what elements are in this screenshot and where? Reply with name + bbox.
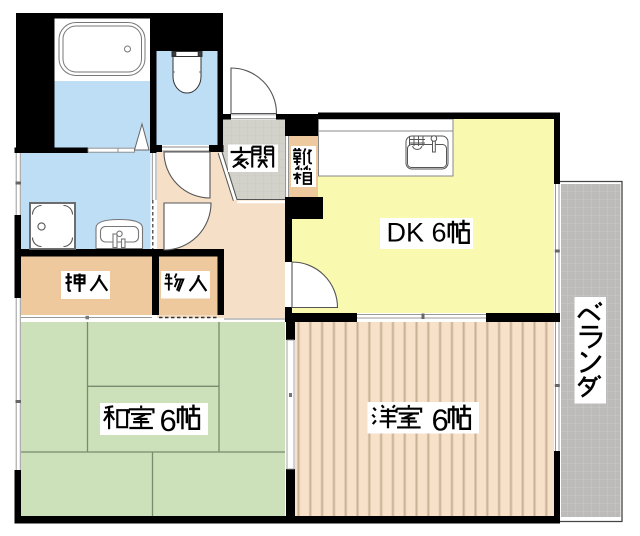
svg-text:6: 6 (160, 403, 177, 438)
svg-text:6: 6 (432, 403, 449, 438)
svg-text:DK 6: DK 6 (387, 217, 447, 247)
